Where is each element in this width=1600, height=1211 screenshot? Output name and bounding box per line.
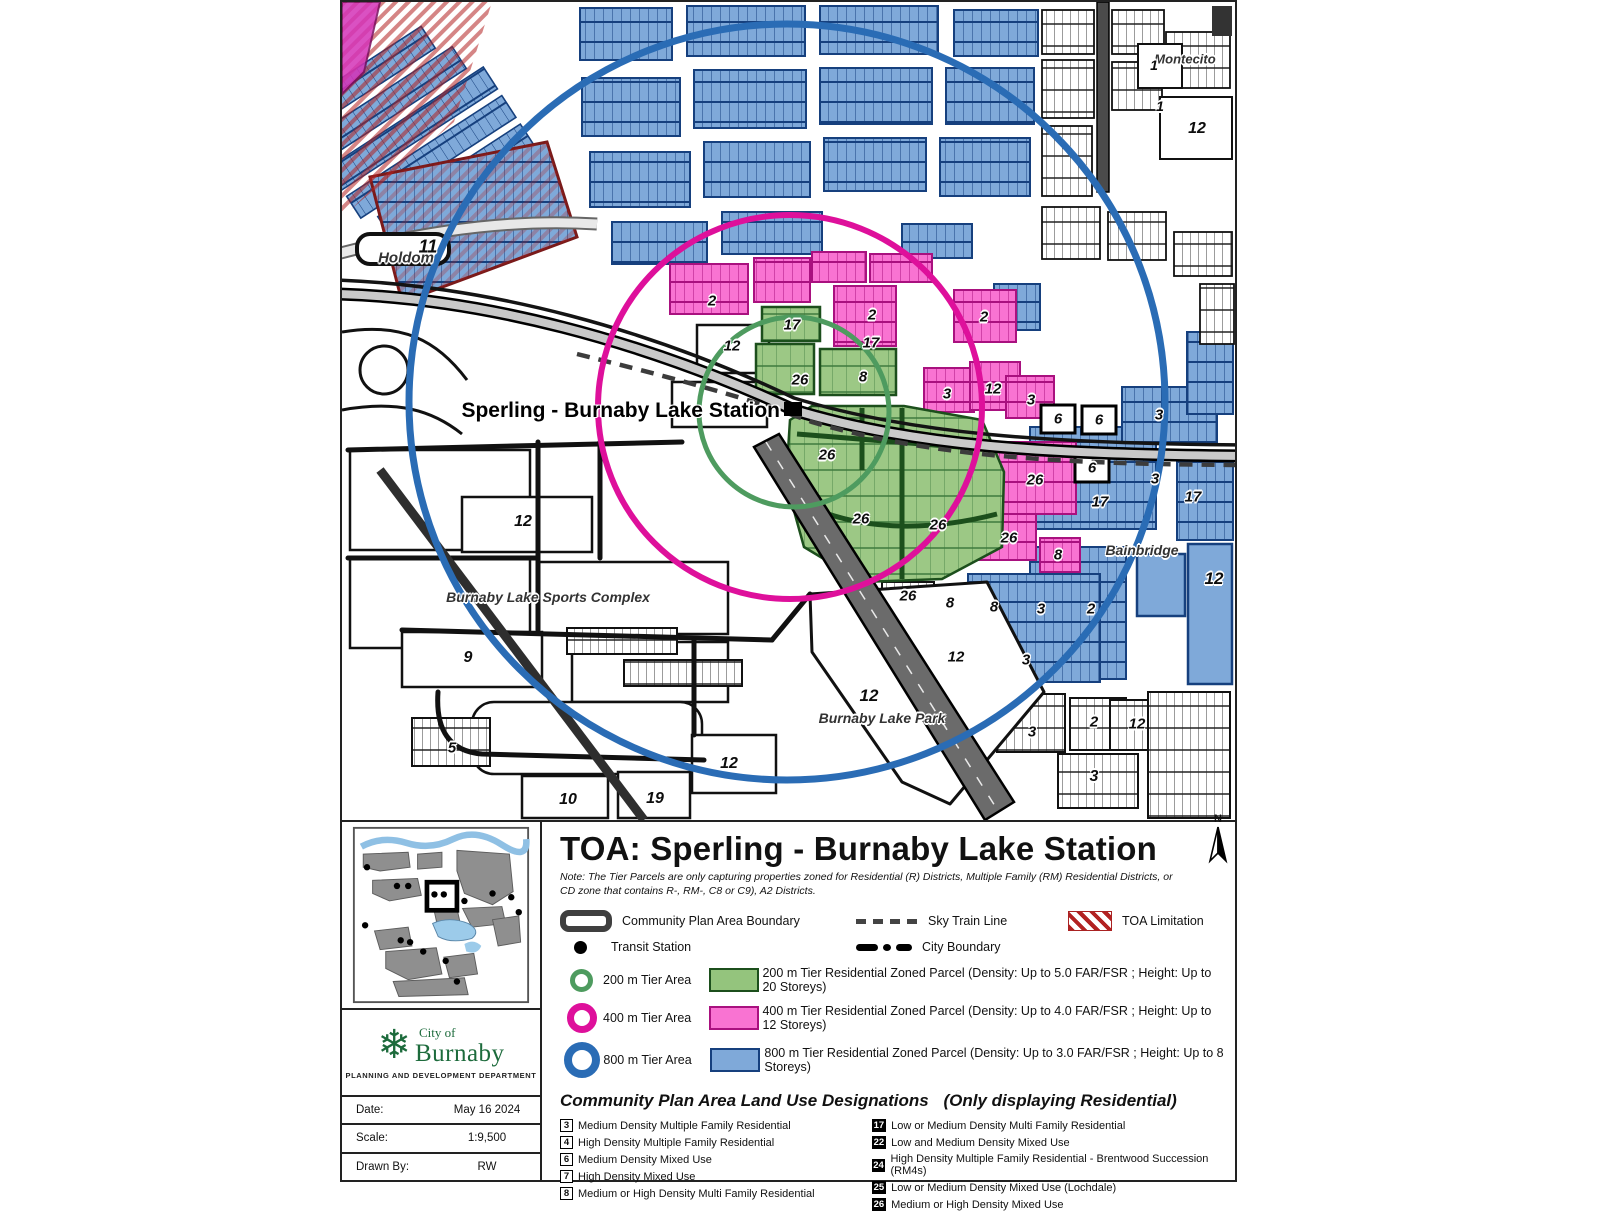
legend-transit-station: Transit Station <box>560 940 856 954</box>
tier-400-parcel-label: 400 m Tier Residential Zoned Parcel (Den… <box>762 1004 1225 1032</box>
tier-800-area-label: 800 m Tier Area <box>603 1053 710 1067</box>
scale-row: Scale: 1:9,500 <box>342 1125 540 1153</box>
land-use-item: 26Medium or High Density Mixed Use <box>872 1198 1225 1211</box>
north-arrow: N <box>1204 814 1232 870</box>
legend-label: TOA Limitation <box>1122 914 1204 928</box>
tier-200-row: 200 m Tier Area 200 m Tier Residential Z… <box>560 966 1225 994</box>
legend-city-boundary: City Boundary <box>856 940 1068 954</box>
land-use-code: 7 <box>560 1170 573 1183</box>
legend-toa-limitation: TOA Limitation <box>1068 910 1225 932</box>
agency-logo-block: ❄ City of Burnaby PLANNING AND DEVELOPME… <box>342 1010 540 1096</box>
land-use-code: 4 <box>560 1136 573 1149</box>
land-use-label: Medium or High Density Multi Family Resi… <box>578 1188 815 1200</box>
scale-label: Scale: <box>342 1132 434 1144</box>
land-use-label: Medium Density Multiple Family Residenti… <box>578 1120 791 1132</box>
north-label: N <box>1204 814 1232 825</box>
transit-station-marker <box>784 402 802 416</box>
tier-400-row: 400 m Tier Area 400 m Tier Residential Z… <box>560 1003 1225 1033</box>
tier-200-parcel-label: 200 m Tier Residential Zoned Parcel (Den… <box>762 966 1225 994</box>
legend-label: Transit Station <box>611 940 691 954</box>
burnaby-snowflake-icon: ❄ <box>377 1025 411 1065</box>
land-use-code: 8 <box>560 1187 573 1200</box>
tier-800-ring-icon <box>564 1042 600 1078</box>
legend-skytrain: Sky Train Line <box>856 910 1068 932</box>
land-use-label: High Density Multiple Family Residential <box>578 1137 774 1149</box>
land-use-code: 17 <box>872 1119 887 1132</box>
legend-label: Sky Train Line <box>928 914 1007 928</box>
north-arrow-icon <box>1205 825 1231 865</box>
land-use-item: 7High Density Mixed Use <box>560 1170 872 1183</box>
inset-map[interactable] <box>342 822 540 1010</box>
map-canvas[interactable]: 11HoldomMontecito11122172172122683123666… <box>342 2 1235 822</box>
land-use-label: Low or Medium Density Multi Family Resid… <box>891 1120 1125 1132</box>
land-use-code: 26 <box>872 1198 887 1211</box>
tier-800-row: 800 m Tier Area 800 m Tier Residential Z… <box>560 1042 1225 1078</box>
tier-400-parcel-swatch <box>709 1006 759 1030</box>
land-use-item: 24High Density Multiple Family Residenti… <box>872 1153 1225 1177</box>
tier-note: Note: The Tier Parcels are only capturin… <box>560 871 1180 898</box>
station-label: Sperling - Burnaby Lake Station <box>402 399 780 423</box>
land-use-code: 3 <box>560 1119 573 1132</box>
land-use-code: 24 <box>872 1159 886 1172</box>
tier-200-area-label: 200 m Tier Area <box>603 973 709 987</box>
land-use-subheading: (Only displaying Residential) <box>943 1091 1176 1110</box>
land-use-label: Low or Medium Density Mixed Use (Lochdal… <box>891 1182 1116 1194</box>
date-value: May 16 2024 <box>434 1104 540 1116</box>
drawn-by-label: Drawn By: <box>342 1161 434 1173</box>
legend-community-boundary: Community Plan Area Boundary <box>560 910 856 932</box>
land-use-item: 3Medium Density Multiple Family Resident… <box>560 1119 872 1132</box>
legend: Community Plan Area Boundary Sky Train L… <box>560 910 1225 954</box>
community-boundary-swatch <box>560 910 612 932</box>
land-use-item: 17Low or Medium Density Multi Family Res… <box>872 1119 1225 1132</box>
transit-station-swatch <box>574 941 587 954</box>
land-use-label: Medium Density Mixed Use <box>578 1154 712 1166</box>
land-use-item: 22Low and Medium Density Mixed Use <box>872 1136 1225 1149</box>
drawn-by-row: Drawn By: RW <box>342 1154 540 1180</box>
tier-200-ring-icon <box>570 969 593 992</box>
scale-value: 1:9,500 <box>434 1132 540 1144</box>
land-use-list: 3Medium Density Multiple Family Resident… <box>560 1119 1225 1211</box>
skytrain-line-swatch <box>856 919 918 924</box>
land-use-item: 8Medium or High Density Multi Family Res… <box>560 1187 872 1200</box>
left-column: ❄ City of Burnaby PLANNING AND DEVELOPME… <box>342 822 542 1180</box>
land-use-code: 22 <box>872 1136 887 1149</box>
inset-map-drawing <box>352 826 530 1004</box>
page-title: TOA: Sperling - Burnaby Lake Station <box>560 830 1225 868</box>
map-sheet: 11HoldomMontecito11122172172122683123666… <box>340 0 1237 1182</box>
land-use-label: High Density Multiple Family Residential… <box>890 1153 1225 1177</box>
tier-legend: 200 m Tier Area 200 m Tier Residential Z… <box>560 966 1225 1078</box>
land-use-heading: Community Plan Area Land Use Designation… <box>560 1091 1225 1111</box>
logo-city-of: City of <box>419 1025 455 1040</box>
info-panel: ❄ City of Burnaby PLANNING AND DEVELOPME… <box>342 822 1235 1180</box>
tier-200-parcel-swatch <box>709 968 759 992</box>
drawn-by-value: RW <box>434 1161 540 1173</box>
toa-limitation-swatch <box>1068 911 1112 931</box>
land-use-label: High Density Mixed Use <box>578 1171 695 1183</box>
land-use-code: 6 <box>560 1153 573 1166</box>
date-row: Date: May 16 2024 <box>342 1097 540 1125</box>
city-boundary-swatch <box>856 944 912 951</box>
tier-800-parcel-label: 800 m Tier Residential Zoned Parcel (Den… <box>764 1046 1225 1074</box>
date-label: Date: <box>342 1104 434 1116</box>
tier-800-parcel-swatch <box>710 1048 760 1072</box>
logo-burnaby: Burnaby <box>415 1040 505 1067</box>
land-use-item: 6Medium Density Mixed Use <box>560 1153 872 1166</box>
land-use-heading-text: Community Plan Area Land Use Designation… <box>560 1091 929 1110</box>
legend-label: Community Plan Area Boundary <box>622 914 800 928</box>
title-legend-block: TOA: Sperling - Burnaby Lake Station Not… <box>542 822 1235 1180</box>
tier-400-ring-icon <box>567 1003 597 1033</box>
land-use-label: Low and Medium Density Mixed Use <box>891 1137 1070 1149</box>
department-name: PLANNING AND DEVELOPMENT DEPARTMENT <box>345 1071 536 1080</box>
land-use-item: 4High Density Multiple Family Residentia… <box>560 1136 872 1149</box>
land-use-item: 25Low or Medium Density Mixed Use (Lochd… <box>872 1181 1225 1194</box>
page: { "colors": { "parcel_green": "#94C47D",… <box>0 0 1600 1200</box>
tier-400-area-label: 400 m Tier Area <box>603 1011 709 1025</box>
legend-label: City Boundary <box>922 940 1001 954</box>
land-use-label: Medium or High Density Mixed Use <box>891 1199 1063 1211</box>
land-use-code: 25 <box>872 1181 887 1194</box>
